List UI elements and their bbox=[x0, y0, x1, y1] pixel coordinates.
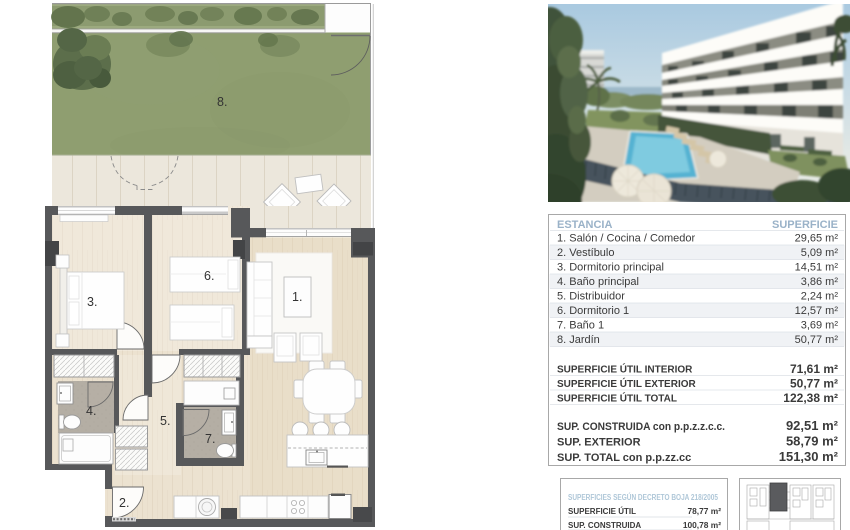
svg-text:78,77 m²: 78,77 m² bbox=[687, 506, 721, 516]
svg-text:SUPERFICIE ÚTIL: SUPERFICIE ÚTIL bbox=[568, 507, 636, 516]
svg-text:2,24 m²: 2,24 m² bbox=[801, 291, 839, 303]
svg-text:100,78 m²: 100,78 m² bbox=[683, 520, 721, 530]
svg-text:29,65 m²: 29,65 m² bbox=[795, 233, 839, 245]
svg-text:7.: 7. bbox=[205, 432, 215, 446]
svg-text:6. Dormitorio 1: 6. Dormitorio 1 bbox=[557, 305, 629, 317]
svg-text:3,69 m²: 3,69 m² bbox=[801, 320, 839, 332]
svg-text:SUPERFICIE ÚTIL EXTERIOR: SUPERFICIE ÚTIL EXTERIOR bbox=[557, 377, 696, 390]
svg-text:SUPERFICIE: SUPERFICIE bbox=[772, 219, 838, 231]
svg-text:122,38 m²: 122,38 m² bbox=[783, 391, 838, 405]
svg-text:50,77 m²: 50,77 m² bbox=[790, 377, 838, 391]
svg-text:5.: 5. bbox=[160, 414, 170, 428]
svg-text:4. Baño principal: 4. Baño principal bbox=[557, 276, 639, 288]
svg-text:SUPERFICIE ÚTIL TOTAL: SUPERFICIE ÚTIL TOTAL bbox=[557, 392, 677, 405]
svg-text:3.: 3. bbox=[87, 295, 97, 309]
svg-text:92,51 m²: 92,51 m² bbox=[786, 418, 839, 433]
svg-text:4.: 4. bbox=[86, 404, 96, 418]
svg-text:5. Distribuidor: 5. Distribuidor bbox=[557, 291, 625, 303]
svg-text:SUPERFICIES SEGÚN DECRETO BOJA: SUPERFICIES SEGÚN DECRETO BOJA 218/2005 bbox=[568, 493, 719, 502]
svg-text:ESTANCIA: ESTANCIA bbox=[557, 219, 612, 231]
svg-text:3. Dormitorio principal: 3. Dormitorio principal bbox=[557, 262, 664, 274]
svg-text:5,09 m²: 5,09 m² bbox=[801, 247, 839, 259]
svg-text:12,57 m²: 12,57 m² bbox=[795, 305, 839, 317]
svg-text:8.: 8. bbox=[217, 95, 227, 109]
svg-text:SUP. EXTERIOR: SUP. EXTERIOR bbox=[557, 437, 641, 449]
svg-text:14,51 m²: 14,51 m² bbox=[795, 262, 839, 274]
svg-text:2.: 2. bbox=[119, 496, 129, 510]
svg-text:SUP. CONSTRUIDA con p.p.z.z.c.: SUP. CONSTRUIDA con p.p.z.z.c.c. bbox=[557, 421, 725, 433]
svg-text:SUP. TOTAL con p.p.zz.cc: SUP. TOTAL con p.p.zz.cc bbox=[557, 452, 691, 464]
svg-text:8. Jardín: 8. Jardín bbox=[557, 334, 600, 346]
svg-text:6.: 6. bbox=[204, 269, 214, 283]
svg-text:1.: 1. bbox=[292, 290, 302, 304]
svg-text:7. Baño 1: 7. Baño 1 bbox=[557, 320, 604, 332]
svg-text:SUP. CONSTRUIDA: SUP. CONSTRUIDA bbox=[568, 521, 641, 530]
svg-text:50,77 m²: 50,77 m² bbox=[795, 334, 839, 346]
svg-text:1. Salón / Cocina / Comedor: 1. Salón / Cocina / Comedor bbox=[557, 233, 696, 245]
svg-text:3,86 m²: 3,86 m² bbox=[801, 276, 839, 288]
svg-text:58,79 m²: 58,79 m² bbox=[786, 434, 839, 449]
svg-text:71,61 m²: 71,61 m² bbox=[790, 362, 838, 376]
svg-text:SUPERFICIE ÚTIL INTERIOR: SUPERFICIE ÚTIL INTERIOR bbox=[557, 363, 693, 376]
svg-text:151,30 m²: 151,30 m² bbox=[779, 449, 839, 464]
svg-text:2. Vestíbulo: 2. Vestíbulo bbox=[557, 247, 615, 259]
